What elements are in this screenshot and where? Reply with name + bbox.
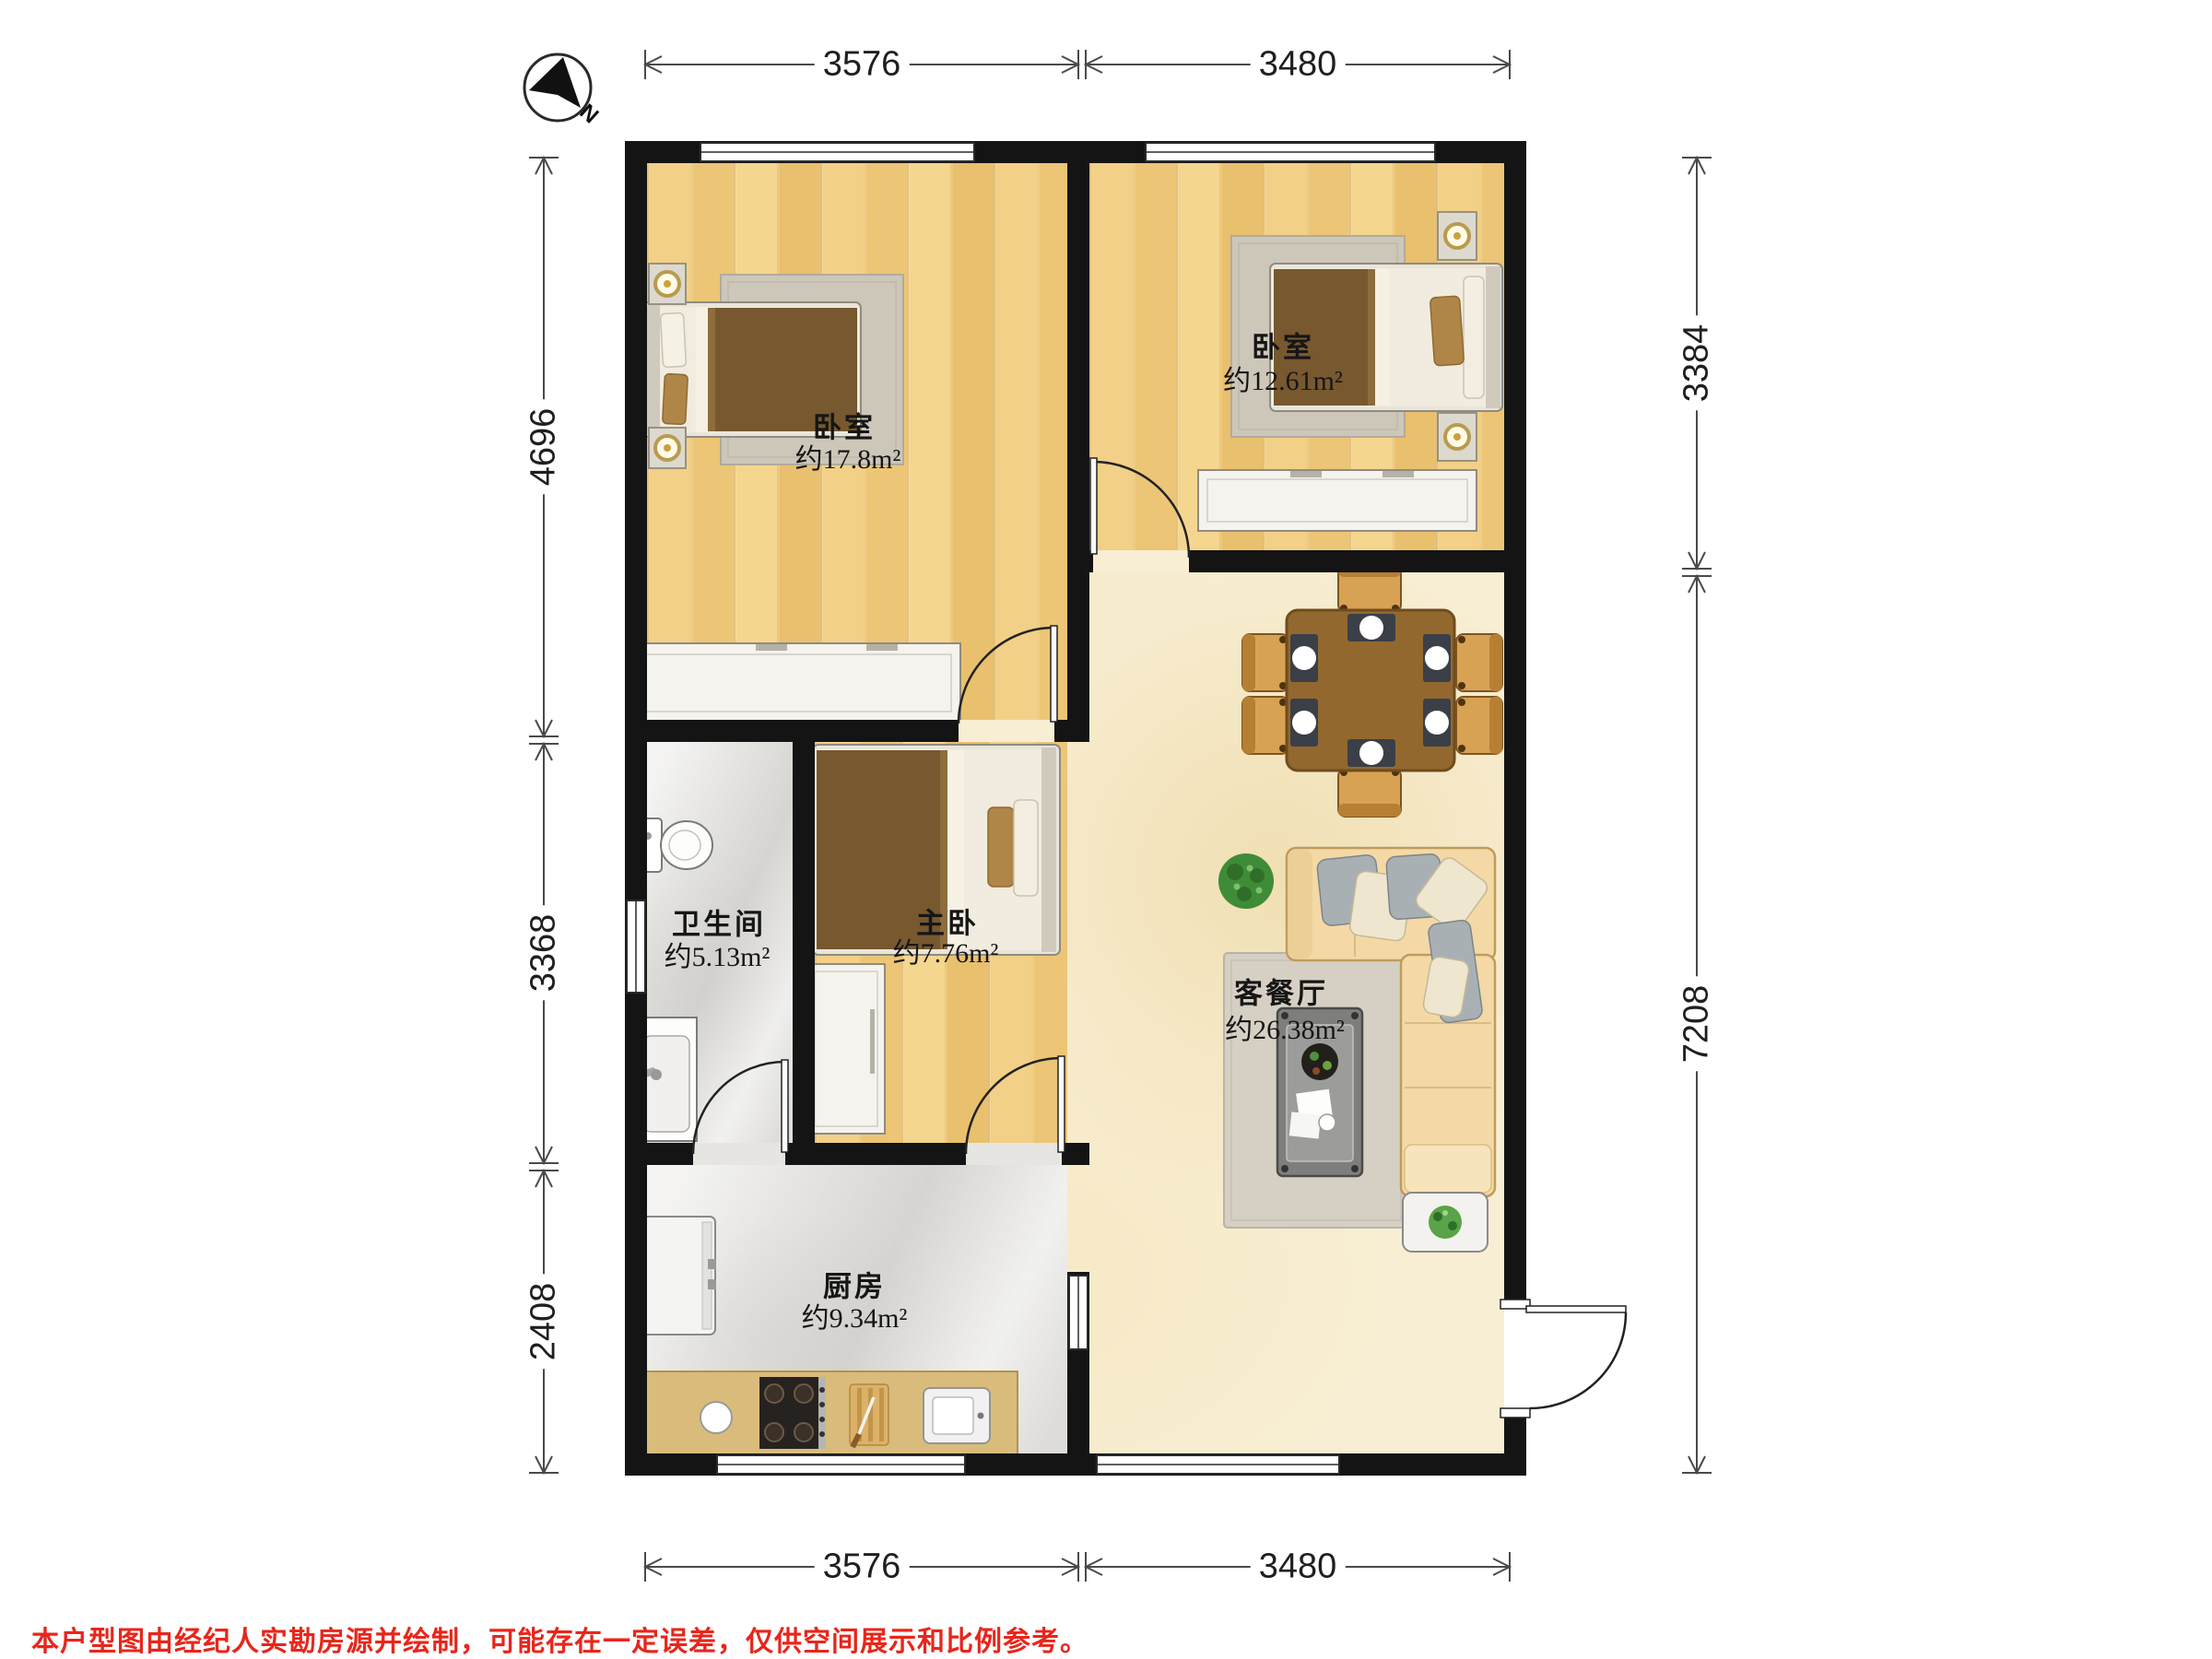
dim-bottom-right: 3480 (1251, 1547, 1346, 1587)
door-entry (1500, 1300, 1626, 1418)
wall-bedroom-b-bottom (1067, 550, 1093, 572)
dim-bottom-left: 3576 (815, 1547, 910, 1587)
dining-chair (1456, 697, 1502, 754)
disclaimer-text: 本户型图由经纪人实勘房源并绘制，可能存在一定误差，仅供空间展示和比例参考。 (31, 1618, 1088, 1659)
dim-top-left: 3576 (815, 45, 910, 85)
window-kitchen (717, 1455, 965, 1474)
door-bedroom-a (959, 626, 1057, 742)
nightstand-bedroom-b-bottom (1438, 413, 1477, 461)
kitchen-sink (700, 1402, 732, 1433)
door-bathroom (693, 1060, 788, 1165)
wardrobe-master (807, 964, 885, 1134)
window-bathroom (627, 900, 645, 993)
wall-master-bottom (1062, 1143, 1089, 1165)
countertop-appliance (924, 1388, 990, 1443)
stove (759, 1377, 826, 1449)
wall-master-bottom (785, 1143, 966, 1165)
wall-outer-left (625, 141, 647, 1476)
nightstand-bedroom-a-top (649, 264, 686, 304)
dining-chair (1242, 697, 1288, 754)
dimension-lines (529, 50, 1712, 1582)
dining-chair (1456, 634, 1502, 691)
window-living (1097, 1455, 1339, 1474)
door-bedroom-b (1090, 458, 1189, 572)
window-bedroom-a (700, 143, 974, 161)
dim-left-lower: 2408 (524, 1275, 564, 1370)
room-area-kitchen: 约9.34m² (802, 1295, 908, 1335)
room-area-living: 约26.38m² (1225, 1006, 1345, 1047)
dim-top-right: 3480 (1251, 45, 1346, 85)
dim-right-upper: 3384 (1677, 316, 1717, 411)
nightstand-bedroom-a-bottom (649, 428, 686, 468)
wall-outer-right (1504, 141, 1526, 1476)
floorplan-graphics (0, 0, 2212, 1659)
dresser-bedroom-a (636, 643, 960, 721)
dim-left-upper: 4696 (524, 400, 564, 495)
wall-bathroom-right (793, 742, 815, 1143)
side-table (1403, 1193, 1488, 1252)
plant-large (1218, 853, 1274, 909)
wall-bedroom-b-bottom (1189, 550, 1504, 572)
room-area-bedroom-b: 约12.61m² (1223, 358, 1343, 398)
dining-table (1287, 610, 1454, 771)
wall-interior-vertical (1067, 163, 1089, 742)
window-bedroom-b (1146, 143, 1435, 161)
wall-bathroom-bottom (625, 1143, 693, 1165)
dining-chair (1242, 634, 1288, 691)
room-area-bathroom: 约5.13m² (665, 934, 771, 974)
wall-bedroom-a-bottom (1054, 720, 1089, 742)
door-master (966, 1056, 1065, 1165)
room-area-bedroom-a: 约17.8m² (795, 436, 901, 477)
cutting-board (850, 1384, 888, 1447)
wall-bedroom-a-bottom (625, 720, 959, 742)
room-name-living: 客餐厅 (1234, 971, 1328, 1012)
dim-left-middle: 3368 (524, 906, 564, 1001)
sliding-panel-kitchen (1069, 1276, 1088, 1349)
room-area-master: 约7.76m² (893, 930, 999, 971)
dining-chair (1338, 769, 1401, 817)
nightstand-bedroom-b-top (1438, 212, 1477, 260)
dim-right-lower: 7208 (1677, 977, 1717, 1072)
floorplan-canvas: N 3576 3480 3576 3480 4696 3368 2408 338… (0, 0, 2212, 1659)
dresser-bedroom-b (1198, 470, 1477, 531)
